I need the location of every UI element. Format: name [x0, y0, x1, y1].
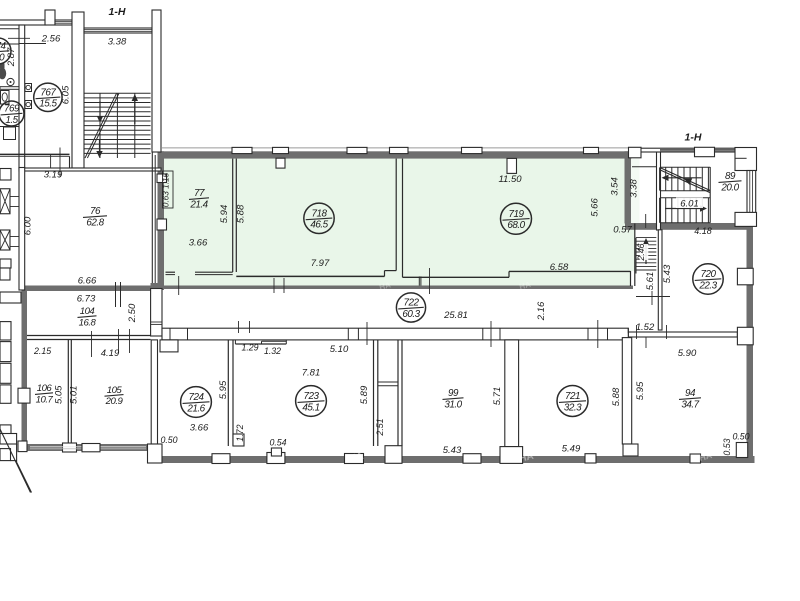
svg-text:5.66: 5.66 — [590, 198, 601, 217]
svg-text:1.5: 1.5 — [5, 115, 18, 126]
svg-text:104: 104 — [80, 306, 95, 317]
svg-text:20.0: 20.0 — [720, 182, 739, 193]
svg-text:5.10: 5.10 — [330, 344, 349, 355]
svg-text:2.50: 2.50 — [127, 303, 138, 323]
svg-text:6.00: 6.00 — [23, 216, 34, 235]
svg-text:2.51: 2.51 — [375, 418, 385, 436]
svg-text:5.94: 5.94 — [219, 205, 230, 224]
svg-text:2.16: 2.16 — [536, 301, 547, 321]
svg-text:68.0: 68.0 — [507, 220, 525, 231]
svg-text:2.46: 2.46 — [636, 243, 646, 261]
svg-text:6.66: 6.66 — [78, 276, 97, 287]
svg-text:3.19: 3.19 — [44, 170, 63, 181]
svg-text:718: 718 — [312, 208, 328, 219]
svg-text:723: 723 — [304, 391, 320, 402]
svg-text:60.3: 60.3 — [402, 309, 420, 320]
svg-text:21.6: 21.6 — [186, 403, 205, 414]
svg-text:21.4: 21.4 — [189, 199, 208, 210]
svg-text:76: 76 — [90, 206, 101, 217]
svg-text:62.8: 62.8 — [86, 217, 104, 228]
svg-text:5.43: 5.43 — [443, 445, 462, 456]
svg-text:1.32: 1.32 — [264, 346, 281, 356]
svg-text:0.50: 0.50 — [160, 435, 177, 445]
svg-text:5.49: 5.49 — [562, 444, 581, 455]
svg-text:4.18: 4.18 — [694, 226, 712, 236]
svg-text:31.0: 31.0 — [444, 399, 462, 410]
svg-text:1.52: 1.52 — [636, 322, 655, 333]
svg-text:5.71: 5.71 — [492, 387, 503, 406]
svg-text:5.95: 5.95 — [635, 381, 646, 400]
svg-text:0.63 1.15: 0.63 1.15 — [161, 172, 170, 207]
svg-text:6.01: 6.01 — [680, 199, 699, 210]
svg-text:94: 94 — [685, 388, 696, 399]
svg-text:720: 720 — [701, 269, 717, 280]
svg-text:105: 105 — [107, 385, 123, 396]
svg-text:77: 77 — [194, 188, 205, 199]
svg-text:1-Н: 1-Н — [685, 132, 702, 144]
svg-text:5.61: 5.61 — [645, 272, 656, 291]
svg-text:7.81: 7.81 — [302, 368, 321, 379]
svg-text:2.15: 2.15 — [33, 346, 51, 356]
svg-text:5.43: 5.43 — [662, 264, 673, 283]
svg-text:4.19: 4.19 — [101, 348, 120, 359]
svg-text:721: 721 — [565, 391, 580, 402]
svg-text:3.38: 3.38 — [629, 179, 640, 198]
svg-text:5.05: 5.05 — [54, 385, 65, 404]
svg-text:5.01: 5.01 — [69, 386, 80, 405]
svg-text:3.54: 3.54 — [610, 177, 621, 196]
svg-text:767: 767 — [40, 87, 56, 98]
svg-text:3.38: 3.38 — [108, 37, 127, 48]
svg-text:15.5: 15.5 — [39, 99, 57, 110]
svg-text:1.72: 1.72 — [235, 424, 245, 441]
svg-text:5.89: 5.89 — [359, 385, 370, 404]
svg-text:719: 719 — [509, 209, 525, 220]
svg-text:6.73: 6.73 — [77, 294, 96, 305]
svg-text:45.1: 45.1 — [302, 402, 319, 413]
svg-text:16.8: 16.8 — [79, 317, 97, 328]
svg-text:6.58: 6.58 — [550, 262, 569, 273]
svg-text:32.3: 32.3 — [564, 402, 582, 413]
svg-text:7.97: 7.97 — [311, 258, 330, 269]
svg-text:724: 724 — [189, 392, 205, 403]
svg-text:10.7: 10.7 — [36, 394, 54, 405]
svg-text:5.88: 5.88 — [236, 204, 247, 223]
svg-text:5.95: 5.95 — [218, 380, 229, 399]
svg-text:0.53: 0.53 — [722, 438, 732, 455]
svg-text:1-Н: 1-Н — [109, 6, 126, 18]
svg-text:722: 722 — [404, 298, 420, 309]
svg-text:89: 89 — [725, 171, 736, 182]
svg-text:34.7: 34.7 — [681, 399, 699, 410]
svg-text:25.81: 25.81 — [443, 310, 468, 321]
svg-text:769: 769 — [4, 104, 20, 115]
svg-text:0.50: 0.50 — [732, 432, 749, 442]
svg-text:22.3: 22.3 — [698, 280, 717, 291]
svg-text:5.88: 5.88 — [611, 387, 622, 406]
svg-text:106: 106 — [37, 383, 53, 394]
svg-text:0.54: 0.54 — [269, 438, 286, 448]
svg-text:99: 99 — [448, 388, 459, 399]
svg-text:0.57: 0.57 — [613, 225, 632, 236]
svg-text:2.56: 2.56 — [41, 34, 61, 45]
svg-text:3.66: 3.66 — [190, 423, 209, 434]
svg-text:5.90: 5.90 — [678, 348, 697, 359]
svg-text:46.5: 46.5 — [310, 220, 328, 231]
svg-text:11.50: 11.50 — [498, 174, 522, 185]
svg-text:1.29: 1.29 — [241, 343, 258, 353]
svg-text:20.9: 20.9 — [105, 396, 124, 407]
svg-text:3.66: 3.66 — [189, 238, 208, 249]
